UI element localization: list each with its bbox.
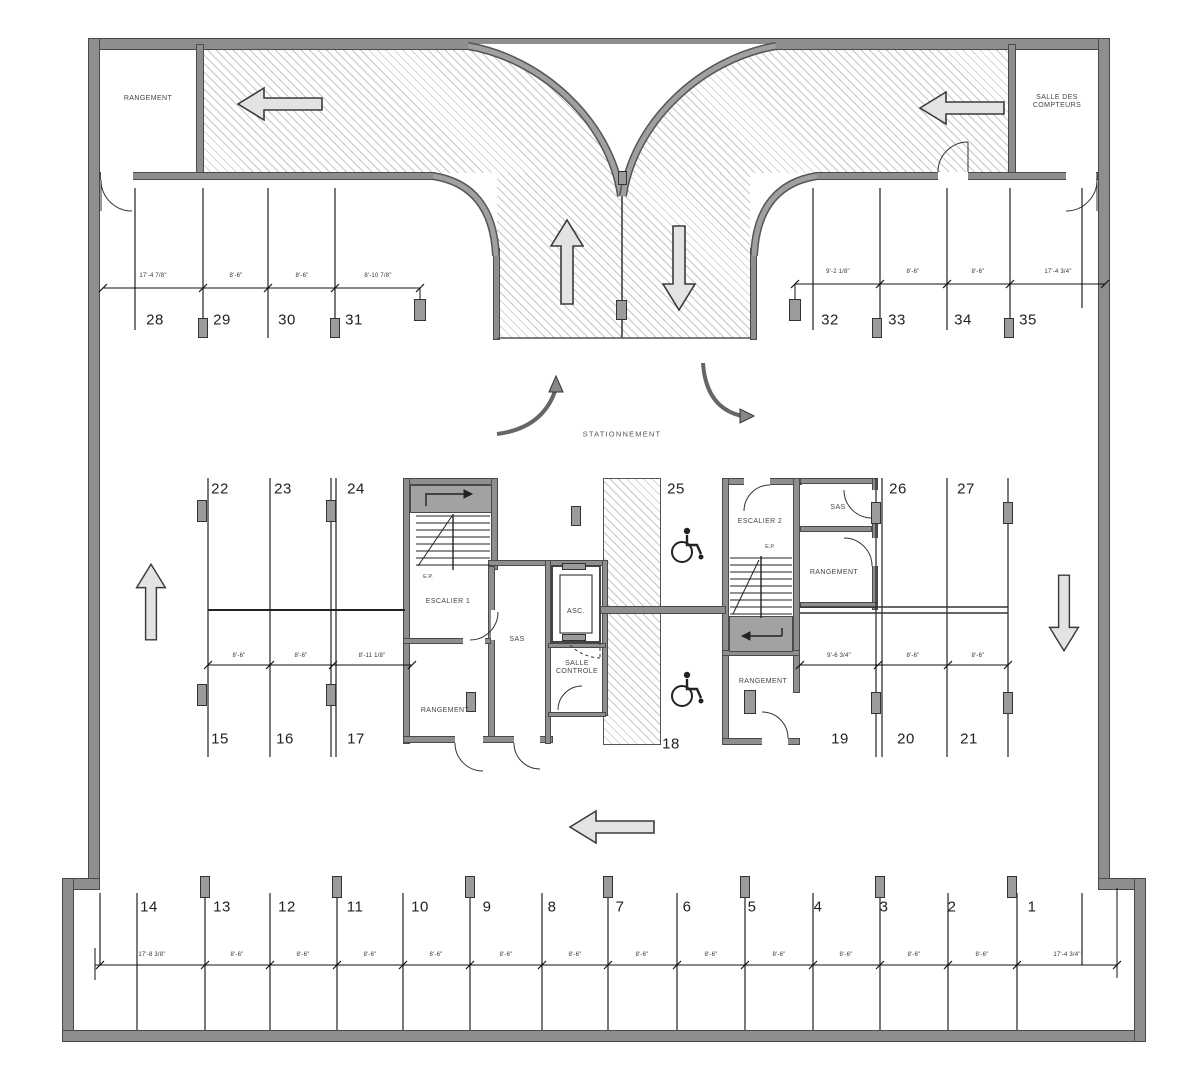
column-post (1003, 502, 1013, 524)
column-post (1004, 318, 1014, 338)
elevator (552, 566, 600, 642)
column-post (414, 299, 426, 321)
dimension-label: 8'-6" (430, 952, 443, 958)
column-post (872, 318, 882, 338)
wall-sasr-div (800, 526, 872, 532)
dimension-label: 8'-11 1/8" (359, 653, 386, 659)
door-gap-compteurs (938, 172, 968, 180)
space-number: 7 (616, 899, 625, 916)
room-label-salle-controle: SALLE CONTROLE (556, 660, 598, 676)
arrow-down-icon (1050, 575, 1079, 651)
space-number: 16 (276, 731, 294, 748)
space-number: 4 (814, 899, 823, 916)
ep-label-left: E.P. (423, 574, 433, 580)
dimension-label: 8'-6" (907, 653, 920, 659)
dimension-label: 8'-6" (705, 952, 718, 958)
column-post (326, 684, 336, 706)
column-post (197, 500, 207, 522)
column-post (875, 876, 885, 898)
wall-asc-bottom (548, 643, 606, 648)
column-post (1007, 876, 1017, 898)
column-post (789, 299, 801, 321)
dimension-label: 8'-6" (972, 653, 985, 659)
wheelchair-icon (672, 672, 704, 706)
stair2-landing (729, 616, 793, 652)
wall-outer-right (1098, 38, 1110, 890)
space-number: 24 (347, 481, 365, 498)
wall-sasr-top (800, 478, 878, 484)
space-number: 18 (662, 736, 680, 753)
space-number: 25 (667, 481, 685, 498)
dimension-label: 8'-6" (233, 653, 246, 659)
door-gap-rangrb (762, 738, 788, 745)
wall-rangement-tl (196, 44, 204, 178)
stair1-landing (410, 485, 492, 513)
space-number: 29 (213, 312, 231, 329)
wall-lower-left (62, 878, 74, 1042)
room-label-asc: ASC. (567, 608, 585, 616)
space-number: 17 (347, 731, 365, 748)
space-number: 1 (1028, 899, 1037, 916)
dimension-label: 17'-4 3/4" (1044, 269, 1071, 275)
wall-outer-top (88, 38, 1110, 50)
space-number: 21 (960, 731, 978, 748)
space-number: 27 (957, 481, 975, 498)
wheelchair-icon (672, 528, 704, 562)
column-post (200, 876, 210, 898)
space-number: 9 (483, 899, 492, 916)
parking-floor-plan: RANGEMENT SALLE DES COMPTEURS STATIONNEM… (0, 0, 1200, 1081)
ramp-divider-stub (618, 171, 627, 185)
aisle-label: STATIONNEMENT (583, 430, 662, 439)
elevator-door-stub (562, 563, 586, 570)
space-number: 5 (748, 899, 757, 916)
dimension-label: 17'-4 3/4" (1053, 952, 1080, 958)
door-gap-esc1 (491, 610, 498, 640)
arrow-left-icon (570, 811, 654, 843)
column-post (1003, 692, 1013, 714)
space-number: 2 (948, 899, 957, 916)
space-number: 28 (146, 312, 164, 329)
dimension-label: 17'-4 7/8" (139, 273, 166, 279)
column-post (571, 506, 581, 526)
door-gap-sas (514, 736, 540, 743)
dimension-label: 17'-8 3/8" (138, 952, 165, 958)
dimension-label: 8'-6" (636, 952, 649, 958)
wall-core-l-right-up (491, 478, 498, 570)
space-number: 12 (278, 899, 296, 916)
space-number: 32 (821, 312, 839, 329)
wall-outer-bottom (62, 1030, 1146, 1042)
wall-core-l-top (403, 478, 498, 485)
space-number: 6 (683, 899, 692, 916)
dimension-label: 8'-6" (500, 952, 513, 958)
door-gap-rangr (872, 538, 878, 566)
column-post (326, 500, 336, 522)
wall-compteurs (1008, 44, 1016, 178)
space-number: 19 (831, 731, 849, 748)
column-post (871, 502, 881, 524)
wall-interior-left (100, 172, 435, 180)
dimension-label: 9'-2 1/8" (826, 269, 850, 275)
door-gap-esc2 (744, 478, 770, 485)
wall-rangr-bottom (800, 602, 878, 608)
wall-ramp-left (493, 248, 500, 340)
space-number: 11 (347, 899, 364, 916)
door-gap-tr (1066, 172, 1096, 180)
space-number: 31 (345, 312, 363, 329)
dimension-label: 8'-6" (295, 653, 308, 659)
room-label-sas-right: SAS (830, 504, 845, 512)
space-number: 22 (211, 481, 229, 498)
dimension-label: 8'-6" (364, 952, 377, 958)
dimension-label: 8'-6" (976, 952, 989, 958)
column-post (871, 692, 881, 714)
dimension-label: 8'-6" (773, 952, 786, 958)
room-label-sas-center: SAS (509, 636, 524, 644)
space-number: 35 (1019, 312, 1037, 329)
space-number: 26 (889, 481, 907, 498)
dimension-label: 8'-6" (908, 952, 921, 958)
space-number: 33 (888, 312, 906, 329)
dimension-label: 8'-6" (907, 269, 920, 275)
dimension-label: 8'-6" (569, 952, 582, 958)
column-post (197, 684, 207, 706)
room-label-rangement-center: RANGEMENT (421, 707, 469, 715)
wall-ramp-right (750, 248, 757, 340)
room-label-rangement-right: RANGEMENT (810, 569, 858, 577)
column-post (332, 876, 342, 898)
wall-outer-left (88, 38, 100, 890)
wall-core-l-sasleft (488, 566, 495, 742)
door-gap-core-l-div (463, 638, 485, 644)
dimension-label: 8'-6" (840, 952, 853, 958)
door-gap-tl (101, 172, 133, 180)
space-number: 10 (411, 899, 429, 916)
wall-controle-bottom (548, 712, 606, 717)
space-number: 13 (213, 899, 231, 916)
wall-asc-right (602, 560, 608, 716)
wall-core-r-bottom (722, 738, 800, 745)
room-label-rangement-rb: RANGEMENT (739, 678, 787, 686)
arrow-up-icon (137, 564, 166, 640)
column-post (330, 318, 340, 338)
dimension-label: 8'-6" (972, 269, 985, 275)
dimension-label: 8'-6" (230, 273, 243, 279)
dimension-label: 8'-6" (297, 952, 310, 958)
space-number: 34 (954, 312, 972, 329)
room-label-rangement-tl: RANGEMENT (124, 95, 172, 103)
column-post (744, 690, 756, 714)
room-label-escalier2: ESCALIER 2 (738, 518, 782, 526)
curved-arrow-up-icon (497, 376, 563, 434)
dimension-label: 8'-10 7/8" (364, 273, 391, 279)
space-number: 15 (211, 731, 229, 748)
space-number: 30 (278, 312, 296, 329)
wall-lower-right (1134, 878, 1146, 1042)
wall-core-l-left (403, 478, 410, 744)
space-number: 3 (880, 899, 889, 916)
room-label-compteurs: SALLE DES COMPTEURS (1033, 94, 1081, 110)
dimension-label: 8'-6" (296, 273, 309, 279)
space-number: 20 (897, 731, 915, 748)
door-gap-rangl (455, 736, 483, 743)
column-post (465, 876, 475, 898)
dimension-label: 9'-6 3/4" (827, 653, 851, 659)
space-number: 14 (140, 899, 158, 916)
dimension-label: 8'-6" (231, 952, 244, 958)
ramp-divider-block (616, 300, 627, 320)
column-post (198, 318, 208, 338)
room-label-escalier1: ESCALIER 1 (426, 598, 470, 606)
wall-2518-divider (600, 606, 726, 614)
curved-arrow-right-icon (703, 363, 754, 423)
space-number: 23 (274, 481, 292, 498)
column-post (603, 876, 613, 898)
ep-label-right: E.P. (765, 544, 775, 550)
wall-core-r-mid (793, 478, 800, 693)
elevator-door-stub (562, 634, 586, 641)
column-post (740, 876, 750, 898)
space-number: 8 (548, 899, 557, 916)
ramp-hatch-band (204, 50, 1008, 173)
